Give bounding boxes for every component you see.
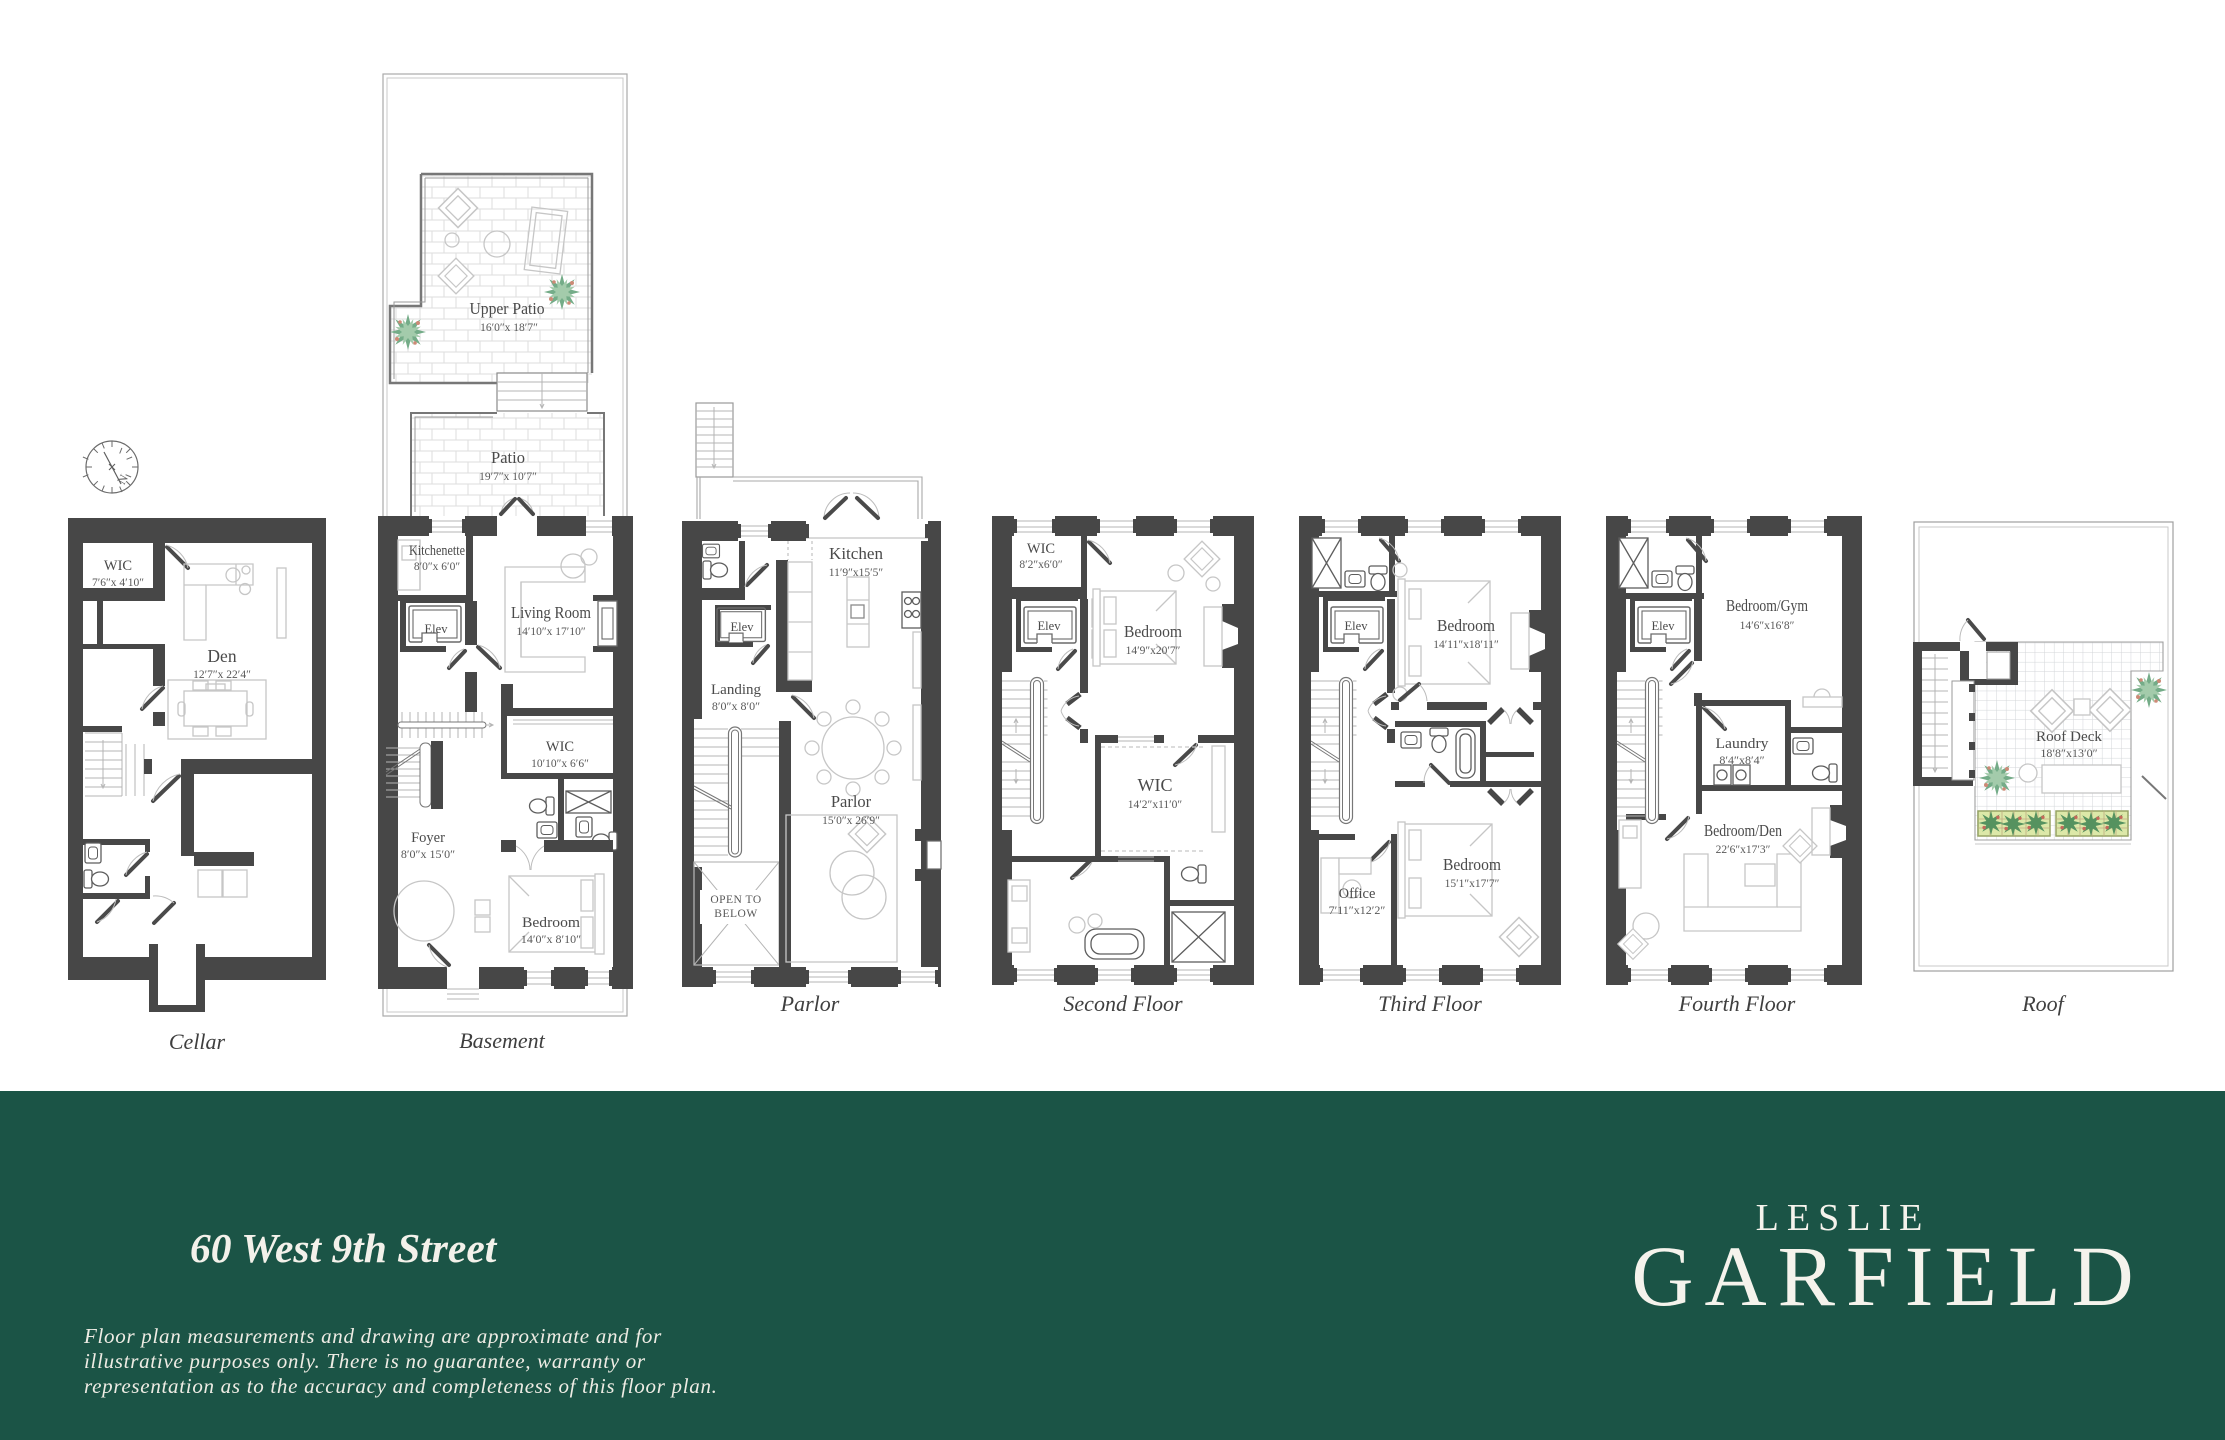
svg-text:12′7″x 22′4″: 12′7″x 22′4″ [193,669,251,681]
svg-text:Third Floor: Third Floor [1378,991,1482,1016]
svg-text:Roof Deck: Roof Deck [2036,729,2103,745]
svg-text:8′2″x6′0″: 8′2″x6′0″ [1019,559,1063,571]
svg-text:Bedroom/Gym: Bedroom/Gym [1726,596,1808,615]
svg-text:Living Room: Living Room [511,603,591,622]
svg-text:8′0″x 6′0″: 8′0″x 6′0″ [414,561,460,573]
svg-text:14′2″x11′0″: 14′2″x11′0″ [1128,799,1183,811]
svg-text:WIC: WIC [1027,541,1055,557]
svg-text:Roof: Roof [2021,991,2066,1016]
svg-text:14′11″x18′11″: 14′11″x18′11″ [1433,639,1499,651]
svg-text:7′6″x 4′10″: 7′6″x 4′10″ [92,577,144,589]
svg-text:11′9″x15′5″: 11′9″x15′5″ [829,567,884,579]
svg-text:Bedroom: Bedroom [522,915,581,931]
svg-text:BELOW: BELOW [714,908,757,920]
svg-text:19′7″x 10′7″: 19′7″x 10′7″ [479,471,537,483]
svg-text:14′6″x16′8″: 14′6″x16′8″ [1740,620,1795,632]
svg-text:7′11″x12′2″: 7′11″x12′2″ [1329,903,1386,917]
svg-text:Bedroom: Bedroom [1443,855,1501,874]
svg-text:Elev: Elev [425,621,448,636]
svg-text:Bedroom/Den: Bedroom/Den [1704,821,1782,840]
svg-text:representation as to the accur: representation as to the accuracy and co… [84,1374,718,1398]
svg-text:Foyer: Foyer [411,830,445,846]
svg-text:Cellar: Cellar [169,1029,226,1054]
svg-text:Second Floor: Second Floor [1063,991,1183,1016]
svg-text:GARFIELD: GARFIELD [1631,1228,2144,1324]
svg-text:Patio: Patio [491,448,525,467]
svg-text:15′0″x 26′9″: 15′0″x 26′9″ [822,815,880,827]
svg-text:15′1″x17′7″: 15′1″x17′7″ [1445,878,1500,890]
svg-text:Elev: Elev [1345,618,1368,633]
svg-text:60 West 9th Street: 60 West 9th Street [190,1225,498,1271]
svg-text:Den: Den [207,646,236,666]
svg-text:Bedroom: Bedroom [1124,622,1182,641]
svg-text:Landing: Landing [711,682,761,698]
svg-text:22′6″x17′3″: 22′6″x17′3″ [1716,844,1771,856]
svg-text:Bedroom: Bedroom [1437,616,1495,635]
svg-text:14′0″x 8′10″: 14′0″x 8′10″ [521,932,581,946]
svg-text:WIC: WIC [1138,775,1173,795]
svg-text:8′4″x8′4″: 8′4″x8′4″ [1719,753,1764,767]
svg-text:8′0″x 8′0″: 8′0″x 8′0″ [712,699,760,713]
svg-text:Office: Office [1339,886,1376,902]
svg-text:WIC: WIC [104,558,132,574]
svg-text:Fourth Floor: Fourth Floor [1678,991,1796,1016]
svg-text:Floor plan measurements and dr: Floor plan measurements and drawing are … [83,1324,662,1348]
svg-text:Kitchenette: Kitchenette [409,543,465,559]
svg-text:14′9″x20′7″: 14′9″x20′7″ [1126,645,1181,657]
svg-text:Elev: Elev [731,619,754,634]
svg-text:Kitchen: Kitchen [829,544,883,563]
svg-text:14′10″x 17′10″: 14′10″x 17′10″ [516,626,585,638]
svg-text:Upper Patio: Upper Patio [470,299,545,318]
svg-text:Basement: Basement [459,1028,545,1053]
svg-text:OPEN TO: OPEN TO [710,894,761,906]
svg-text:8′0″x 15′0″: 8′0″x 15′0″ [401,847,455,861]
svg-text:Elev: Elev [1038,618,1061,633]
svg-text:Laundry: Laundry [1716,736,1770,752]
svg-text:Parlor: Parlor [780,991,840,1016]
svg-text:18′8″x13′0″: 18′8″x13′0″ [2040,746,2097,760]
svg-text:Parlor: Parlor [831,792,872,811]
svg-text:Elev: Elev [1652,618,1675,633]
svg-text:illustrative purposes only. Th: illustrative purposes only. There is no … [84,1349,646,1373]
svg-text:16′0″x 18′7″: 16′0″x 18′7″ [480,322,538,334]
svg-text:WIC: WIC [546,739,574,755]
svg-text:10′10″x 6′6″: 10′10″x 6′6″ [531,758,589,770]
